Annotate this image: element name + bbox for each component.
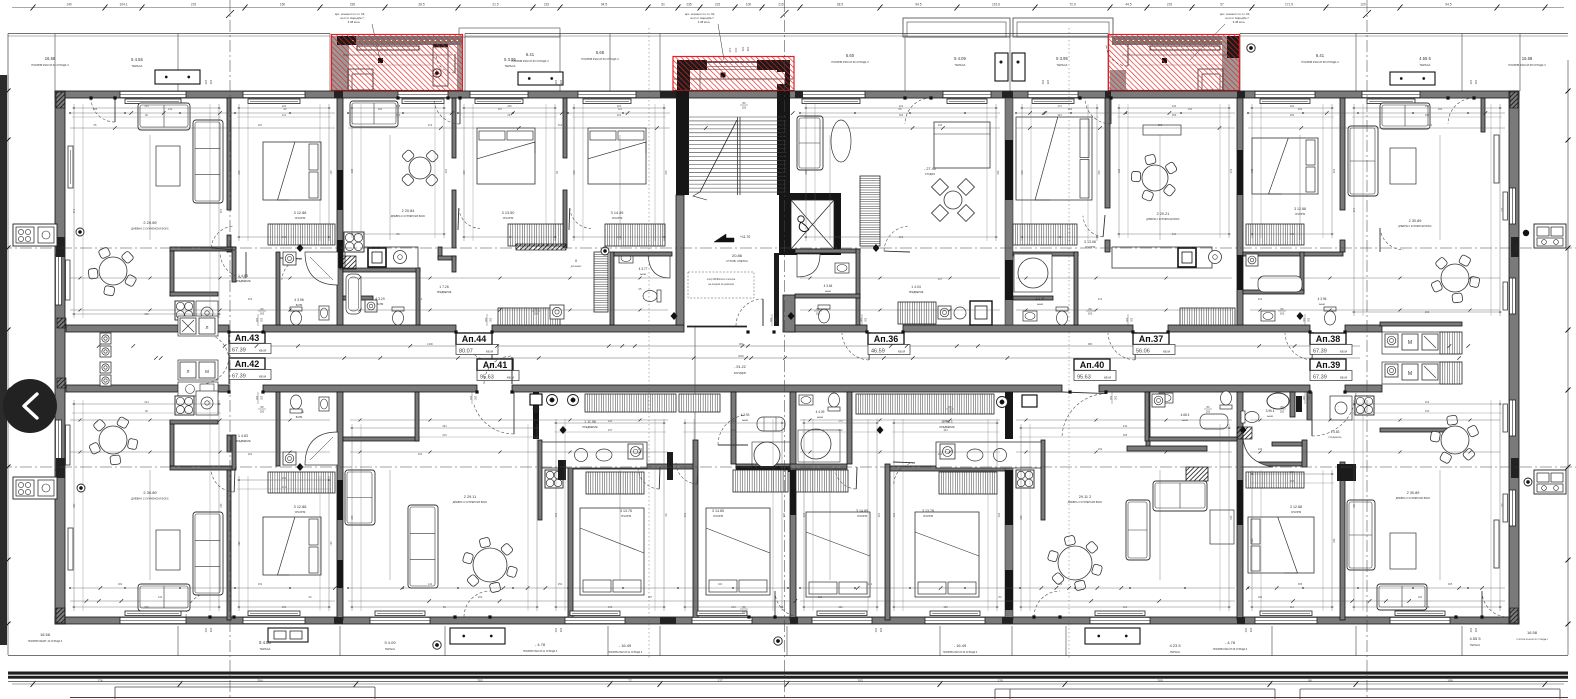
svg-text:160: 160 <box>507 235 512 239</box>
svg-text:189: 189 <box>1447 679 1453 683</box>
svg-text:200: 200 <box>864 318 867 323</box>
svg-text:5 4.09: 5 4.09 <box>384 640 396 645</box>
svg-text:200: 200 <box>282 605 287 609</box>
svg-text:252: 252 <box>558 582 563 586</box>
svg-text:СПАЛНЯ: СПАЛНЯ <box>612 217 623 220</box>
svg-text:252: 252 <box>1097 170 1101 175</box>
svg-text:ТЕРАСА: ТЕРАСА <box>132 64 143 68</box>
svg-text:203: 203 <box>396 113 401 117</box>
svg-text:170: 170 <box>838 419 843 423</box>
svg-text:222: 222 <box>248 452 253 456</box>
svg-text:ПРЕДВЕРИЕ: ПРЕДВЕРИЕ <box>582 426 598 429</box>
svg-text:390: 390 <box>350 515 354 520</box>
svg-text:БАНЯ: БАНЯ <box>1037 303 1043 306</box>
svg-text:ПРЕДВЕРИЕ: ПРЕДВЕРИЕ <box>437 291 452 294</box>
svg-text:200: 200 <box>1307 318 1310 323</box>
svg-text:284: 284 <box>1117 169 1121 174</box>
svg-text:ДНЕВНА С КУХНЕНСКИ БОКС: ДНЕВНА С КУХНЕНСКИ БОКС <box>1396 497 1431 500</box>
svg-text:322: 322 <box>838 605 843 609</box>
svg-text:314: 314 <box>144 104 149 108</box>
svg-text:94.5: 94.5 <box>915 3 921 7</box>
svg-text:67.39: 67.39 <box>232 348 246 354</box>
svg-text:131: 131 <box>1123 605 1128 609</box>
svg-text:152: 152 <box>943 605 948 609</box>
svg-text:230: 230 <box>350 3 356 7</box>
svg-text:100: 100 <box>1188 107 1193 111</box>
svg-text:1 4.83: 1 4.83 <box>1331 430 1340 434</box>
svg-text:3 13.50: 3 13.50 <box>502 211 515 215</box>
svg-text:16.58: 16.58 <box>45 56 56 61</box>
svg-text:410: 410 <box>1229 169 1233 174</box>
svg-text:ДНЕВНА С КУХНЕНСКИ БОКС: ДНЕВНА С КУХНЕНСКИ БОКС <box>1068 501 1103 504</box>
svg-text:127: 127 <box>717 679 723 683</box>
svg-text:215: 215 <box>715 3 721 7</box>
svg-text:2 20.84: 2 20.84 <box>402 209 415 213</box>
svg-text:380: 380 <box>1088 342 1093 346</box>
svg-text:ТЕРАСА: ТЕРАСА <box>1470 643 1480 647</box>
svg-text:400: 400 <box>683 513 687 518</box>
svg-text:200: 200 <box>734 48 738 53</box>
svg-text:ДНЕВНА С КУХНЕНСКИ БОКС: ДНЕВНА С КУХНЕНСКИ БОКС <box>453 501 488 504</box>
svg-text:420: 420 <box>1332 169 1336 174</box>
svg-text:200: 200 <box>378 107 383 111</box>
svg-text:410: 410 <box>1229 515 1233 520</box>
svg-text:205: 205 <box>1157 679 1163 683</box>
svg-text:Ап.39: Ап.39 <box>1316 360 1340 370</box>
svg-text:104: 104 <box>943 428 948 432</box>
svg-text:235: 235 <box>1249 628 1253 633</box>
svg-text:БАНЯ: БАНЯ <box>742 419 748 422</box>
svg-text:100: 100 <box>554 80 558 85</box>
svg-text:104: 104 <box>1057 113 1062 117</box>
svg-text:БАНЯ: БАНЯ <box>817 416 823 419</box>
svg-text:ПОКРИВ КЪМ АТ.41 СГРАДА 3: ПОКРИВ КЪМ АТ.41 СГРАДА 3 <box>523 650 558 653</box>
svg-text:298: 298 <box>1250 538 1254 543</box>
svg-text:100: 100 <box>1302 396 1305 401</box>
svg-text:100: 100 <box>741 47 745 52</box>
svg-text:72.9: 72.9 <box>1069 3 1075 7</box>
svg-text:77: 77 <box>628 679 632 683</box>
svg-text:322: 322 <box>418 452 423 456</box>
svg-text:257: 257 <box>329 541 333 546</box>
svg-text:213: 213 <box>731 605 736 609</box>
svg-text:140: 140 <box>66 3 72 7</box>
svg-text:200: 200 <box>1114 396 1117 401</box>
svg-text:235: 235 <box>559 628 563 633</box>
svg-text:184: 184 <box>1290 470 1295 474</box>
svg-text:100: 100 <box>444 169 448 174</box>
svg-text:Л: Л <box>187 369 190 374</box>
svg-text:322: 322 <box>1158 123 1163 127</box>
svg-text:28.5: 28.5 <box>418 3 424 7</box>
svg-text:ПОКРИВ КЪМ АТ.36 СГРАДА 3: ПОКРИВ КЪМ АТ.36 СГРАДА 3 <box>831 60 869 64</box>
svg-text:3 12.88: 3 12.88 <box>1290 505 1302 509</box>
svg-text:252: 252 <box>997 513 1001 518</box>
svg-text:3 14.49: 3 14.49 <box>611 211 624 215</box>
svg-text:200: 200 <box>260 410 265 414</box>
svg-text:200: 200 <box>534 312 539 316</box>
svg-text:3081: 3081 <box>738 354 744 358</box>
svg-text:305: 305 <box>1448 582 1453 586</box>
svg-text:125: 125 <box>997 679 1003 683</box>
svg-text:3 14.85: 3 14.85 <box>712 509 724 513</box>
svg-text:235: 235 <box>209 628 213 633</box>
svg-text:142: 142 <box>158 595 163 599</box>
svg-text:21.5: 21.5 <box>492 3 498 7</box>
svg-text:СПАЛНЯ: СПАЛНЯ <box>857 515 867 518</box>
svg-text:ПОКРИВ КЪМАТ. 40 СГРАДА 3: ПОКРИВ КЪМАТ. 40 СГРАДА 3 <box>28 640 63 643</box>
svg-text:202: 202 <box>1258 595 1263 599</box>
svg-text:235: 235 <box>686 3 692 7</box>
svg-text:200: 200 <box>282 235 287 239</box>
svg-text:БАНЯ: БАНЯ <box>296 416 303 419</box>
svg-text:257: 257 <box>648 595 653 599</box>
svg-text:БАНЯ: БАНЯ <box>1182 419 1188 422</box>
svg-text:ТЕРАСА: ТЕРАСА <box>260 647 271 651</box>
svg-text:КОРИДОР: КОРИДОР <box>734 371 747 375</box>
svg-text:131: 131 <box>868 582 873 586</box>
svg-text:ДНЕВНА С КУХНЕНСКИ БОКС: ДНЕВНА С КУХНЕНСКИ БОКС <box>1146 218 1179 221</box>
svg-text:203: 203 <box>1298 107 1303 111</box>
svg-text:М: М <box>1408 340 1412 346</box>
svg-text:- 4.78: - 4.78 <box>1225 640 1236 645</box>
svg-text:1 4.04: 1 4.04 <box>911 285 921 289</box>
svg-text:100: 100 <box>746 3 752 7</box>
svg-text:100: 100 <box>1125 318 1128 323</box>
svg-text:16.58: 16.58 <box>1522 56 1533 61</box>
svg-text:М: М <box>1408 371 1412 377</box>
svg-text:235: 235 <box>746 47 750 52</box>
svg-text:302: 302 <box>938 452 943 456</box>
svg-text:5 3.95: 5 3.95 <box>504 57 516 62</box>
svg-text:202: 202 <box>1068 107 1073 111</box>
svg-text:305: 305 <box>144 312 149 316</box>
svg-text:400: 400 <box>802 513 806 518</box>
svg-text:215: 215 <box>1167 3 1173 7</box>
svg-text:3 12.88: 3 12.88 <box>294 505 307 509</box>
svg-text:213: 213 <box>428 123 433 127</box>
svg-text:2 30.89: 2 30.89 <box>1407 491 1420 495</box>
svg-text:340: 340 <box>638 447 643 451</box>
svg-text:200: 200 <box>474 396 477 401</box>
svg-text:200: 200 <box>1280 410 1285 414</box>
svg-text:ТЕРАСА: ТЕРАСА <box>505 64 516 68</box>
svg-text:СПАЛНЯ: СПАЛНЯ <box>1291 511 1301 514</box>
svg-text:322: 322 <box>899 235 904 239</box>
svg-text:Ап.42: Ап.42 <box>235 359 259 369</box>
svg-text:235: 235 <box>1474 80 1478 85</box>
svg-text:312: 312 <box>558 123 563 127</box>
svg-text:213: 213 <box>1098 297 1103 301</box>
svg-text:20.86: 20.86 <box>732 253 743 258</box>
svg-text:235: 235 <box>559 80 563 85</box>
svg-text:284: 284 <box>1250 169 1254 174</box>
svg-text:4 3.64: 4 3.64 <box>824 284 833 288</box>
svg-text:3.38 кв.м.: 3.38 кв.м. <box>698 20 711 24</box>
svg-text:3 13.76: 3 13.76 <box>620 509 632 513</box>
svg-text:на покрив за ревизия: на покрив за ревизия <box>708 283 734 286</box>
svg-text:100: 100 <box>469 396 472 401</box>
svg-text:302: 302 <box>899 113 904 117</box>
svg-text:215: 215 <box>778 3 784 7</box>
svg-text:237: 237 <box>507 113 512 117</box>
svg-text:94.5: 94.5 <box>601 3 607 7</box>
svg-text:440: 440 <box>1352 208 1356 213</box>
svg-text:116: 116 <box>1290 605 1295 609</box>
svg-text:ДРЕШНИК: ДРЕШНИК <box>571 266 583 268</box>
svg-text:240: 240 <box>608 419 613 423</box>
svg-text:2 20.21: 2 20.21 <box>1157 212 1170 216</box>
svg-text:102: 102 <box>1425 605 1430 609</box>
svg-text:опор 90/90см в плочата: опор 90/90см в плочата <box>707 277 736 281</box>
svg-text:ПОКРИВ КЪМ АТ.41 СГРАДА 3: ПОКРИВ КЪМ АТ.41 СГРАДА 3 <box>608 651 643 654</box>
svg-text:100: 100 <box>1244 628 1248 633</box>
svg-text:5.60: 5.60 <box>846 53 855 58</box>
svg-text:438: 438 <box>72 503 76 508</box>
svg-text:100: 100 <box>874 628 878 633</box>
svg-text:290: 290 <box>572 170 576 175</box>
svg-text:Ап.38: Ап.38 <box>1316 334 1340 344</box>
svg-text:100: 100 <box>204 80 208 85</box>
svg-text:120: 120 <box>1360 3 1366 7</box>
svg-text:Л: Л <box>206 325 209 330</box>
svg-text:150: 150 <box>1425 409 1430 413</box>
svg-text:4 4.09: 4 4.09 <box>816 410 825 414</box>
svg-text:438: 438 <box>1352 503 1356 508</box>
svg-text:420: 420 <box>1332 538 1336 543</box>
svg-text:100: 100 <box>204 628 208 633</box>
svg-text:1390: 1390 <box>427 342 433 346</box>
svg-text:171.5: 171.5 <box>1285 3 1293 7</box>
svg-text:316: 316 <box>1425 400 1430 404</box>
svg-text:200: 200 <box>478 595 483 599</box>
svg-text:ДНЕВНА С КУХНЕНСКИ БОКС: ДНЕВНА С КУХНЕНСКИ БОКС <box>391 215 426 218</box>
svg-text:80.07: 80.07 <box>459 349 473 355</box>
svg-text:ТЕРАСА: ТЕРАСА <box>1420 63 1431 67</box>
svg-text:4 3.93: 4 3.93 <box>741 413 750 417</box>
svg-text:174: 174 <box>1057 104 1062 108</box>
svg-text:235: 235 <box>879 628 883 633</box>
svg-text:312: 312 <box>1258 297 1263 301</box>
svg-text:140: 140 <box>728 48 732 53</box>
svg-text:5 4.09: 5 4.09 <box>954 56 966 61</box>
svg-text:3 12.88: 3 12.88 <box>294 211 307 215</box>
svg-text:Ап.40: Ап.40 <box>1080 360 1104 370</box>
svg-text:100: 100 <box>255 396 258 401</box>
svg-text:215: 215 <box>544 3 550 7</box>
svg-text:235: 235 <box>209 80 213 85</box>
svg-text:4 3.96: 4 3.96 <box>1318 297 1327 301</box>
svg-text:29.11 2: 29.11 2 <box>1079 495 1091 499</box>
svg-text:100: 100 <box>1041 80 1045 85</box>
svg-text:200: 200 <box>489 318 492 323</box>
svg-text:121: 121 <box>618 107 623 111</box>
svg-text:290: 290 <box>462 170 466 175</box>
svg-text:БАНЯ: БАНЯ <box>1319 303 1325 306</box>
svg-text:286: 286 <box>237 541 241 546</box>
svg-text:СПАЛНЯ: СПАЛНЯ <box>1085 246 1095 249</box>
svg-text:57: 57 <box>1220 3 1224 7</box>
svg-text:176: 176 <box>97 679 103 683</box>
svg-text:СПАЛНЯ: СПАЛНЯ <box>923 515 933 518</box>
svg-text:ПРЕДВЕРИЕ: ПРЕДВЕРИЕ <box>235 440 251 443</box>
svg-text:6.38 кв.м.: 6.38 кв.м. <box>1233 20 1246 24</box>
svg-text:150: 150 <box>1425 113 1430 117</box>
svg-text:410: 410 <box>1058 582 1063 586</box>
svg-text:- 16.49: - 16.49 <box>619 643 632 648</box>
svg-text:222: 222 <box>731 428 736 432</box>
svg-text:142: 142 <box>219 503 223 508</box>
svg-text:ПОКРИВ КЪМ АТ.40 СГРАДА 3: ПОКРИВ КЪМ АТ.40 СГРАДА 3 <box>511 59 549 63</box>
svg-text:М: М <box>205 369 209 374</box>
svg-text:121: 121 <box>818 595 823 599</box>
svg-text:365: 365 <box>1172 113 1177 117</box>
svg-text:46.59: 46.59 <box>871 349 885 355</box>
svg-text:СТУДИО: СТУДИО <box>925 173 935 176</box>
svg-text:ТЕРАСА: ТЕРАСА <box>1170 650 1180 654</box>
svg-text:152: 152 <box>258 582 263 586</box>
svg-text:160: 160 <box>1438 107 1443 111</box>
svg-text:200: 200 <box>1130 318 1133 323</box>
svg-text:121: 121 <box>282 485 287 489</box>
svg-text:ПРЕДВЕРИЕ: ПРЕДВЕРИЕ <box>909 291 924 294</box>
svg-text:142: 142 <box>168 107 173 111</box>
svg-text:100: 100 <box>484 318 487 323</box>
svg-text:217: 217 <box>1500 503 1504 508</box>
svg-text:ТЕРАСА: ТЕРАСА <box>955 63 966 67</box>
svg-text:237: 237 <box>258 123 263 127</box>
svg-text:6.41: 6.41 <box>526 52 535 57</box>
svg-text:4.55 5: 4.55 5 <box>1419 56 1431 61</box>
svg-text:кв.м: кв.м <box>1104 376 1111 380</box>
svg-text:142: 142 <box>428 582 433 586</box>
svg-text:2 20.89: 2 20.89 <box>143 220 157 225</box>
svg-text:290: 290 <box>1020 170 1024 175</box>
svg-text:206: 206 <box>507 104 512 108</box>
svg-text:86: 86 <box>1308 679 1312 683</box>
svg-text:СПАЛНЯ: СПАЛНЯ <box>503 217 514 220</box>
svg-text:4 3.77: 4 3.77 <box>639 267 648 271</box>
svg-text:5 4.55: 5 4.55 <box>131 57 143 62</box>
svg-text:102: 102 <box>1425 310 1430 314</box>
svg-text:4 3.96: 4 3.96 <box>294 298 304 302</box>
svg-text:СПАЛНЯ: СПАЛНЯ <box>295 511 306 514</box>
svg-text:312: 312 <box>664 170 668 175</box>
svg-text:5.68: 5.68 <box>596 50 605 55</box>
svg-text:100: 100 <box>554 628 558 633</box>
svg-text:4 4.05: 4 4.05 <box>1036 297 1045 301</box>
svg-text:230: 230 <box>943 419 948 423</box>
svg-text:142: 142 <box>1258 447 1263 451</box>
svg-text:365: 365 <box>1298 582 1303 586</box>
svg-text:ПОКРИВ КЪМ АТ.38 СГРАДА 3: ПОКРИВ КЪМ АТ.38 СГРАДА 3 <box>1301 60 1339 64</box>
svg-text:444: 444 <box>72 209 76 214</box>
svg-text:316: 316 <box>1425 104 1430 108</box>
svg-text:100: 100 <box>769 318 772 323</box>
svg-text:340: 340 <box>877 513 881 518</box>
svg-text:2 29.11: 2 29.11 <box>464 495 476 499</box>
svg-text:100: 100 <box>537 515 541 520</box>
svg-text:142: 142 <box>219 209 223 214</box>
svg-text:203: 203 <box>248 297 253 301</box>
svg-text:305: 305 <box>93 107 98 111</box>
svg-text:СТЪЛБ. КЛЕТКА: СТЪЛБ. КЛЕТКА <box>726 259 748 263</box>
svg-text:237: 237 <box>608 428 613 432</box>
svg-text:100: 100 <box>1302 318 1305 323</box>
svg-text:БАНЯ: БАНЯ <box>296 304 303 307</box>
svg-text:3 13.78: 3 13.78 <box>922 509 934 513</box>
svg-text:ПОКРИВ КЪМ АТ.40 СГРАДА 3: ПОКРИВ КЪМ АТ.40 СГРАДА 3 <box>581 57 619 61</box>
svg-text:215: 215 <box>191 3 197 7</box>
svg-text:100: 100 <box>1109 396 1112 401</box>
svg-text:200: 200 <box>1307 396 1310 401</box>
svg-text:200: 200 <box>948 410 953 414</box>
svg-text:284: 284 <box>350 169 354 174</box>
svg-text:Ап.43: Ап.43 <box>235 333 259 343</box>
svg-text:400: 400 <box>892 513 896 518</box>
svg-text:28.5: 28.5 <box>837 3 843 7</box>
svg-text:235: 235 <box>1046 80 1050 85</box>
svg-text:кв.м: кв.м <box>507 376 514 380</box>
svg-text:4.55 5: 4.55 5 <box>1469 636 1481 641</box>
svg-text:кв.м: кв.м <box>259 375 266 379</box>
svg-text:305: 305 <box>144 605 149 609</box>
svg-text:152: 152 <box>1098 447 1103 451</box>
svg-text:ПОКРИВ КЪМ АТ.40 СГРАДА 3: ПОКРИВ КЪМ АТ.40 СГРАДА 3 <box>31 63 69 67</box>
svg-text:365: 365 <box>1123 433 1128 437</box>
svg-text:Ап.44: Ап.44 <box>462 334 486 344</box>
svg-text:16.58: 16.58 <box>1527 630 1538 635</box>
svg-text:160: 160 <box>608 605 613 609</box>
svg-text:200: 200 <box>1280 312 1285 316</box>
svg-text:104: 104 <box>718 582 723 586</box>
svg-text:ПРЕДВЕРИЕ: ПРЕДВЕРИЕ <box>1328 437 1342 439</box>
svg-text:340: 340 <box>996 170 1000 175</box>
svg-text:394: 394 <box>442 424 447 428</box>
svg-text:3.96 4: 3.96 4 <box>1266 409 1275 413</box>
svg-text:БАНЯ: БАНЯ <box>640 273 646 276</box>
svg-text:152: 152 <box>1057 235 1062 239</box>
svg-text:67.39: 67.39 <box>232 374 246 380</box>
svg-text:2 30.89: 2 30.89 <box>143 490 157 495</box>
svg-text:200: 200 <box>534 410 539 414</box>
svg-text:6.38 кв.м.: 6.38 кв.м. <box>348 20 361 24</box>
svg-text:312: 312 <box>782 513 786 518</box>
svg-text:302: 302 <box>838 428 843 432</box>
svg-text:5x: 5x <box>661 3 665 7</box>
svg-text:400: 400 <box>554 513 558 518</box>
svg-text:100: 100 <box>1469 80 1473 85</box>
svg-text:440: 440 <box>1123 424 1128 428</box>
svg-text:ТЕРАСА: ТЕРАСА <box>385 647 395 651</box>
svg-text:203: 203 <box>442 433 447 437</box>
svg-text:235: 235 <box>1474 628 1478 633</box>
svg-text:4.23 5: 4.23 5 <box>1169 643 1181 648</box>
svg-text:95.63: 95.63 <box>480 375 494 381</box>
svg-text:кв.м: кв.м <box>259 349 266 353</box>
svg-text:кв.м: кв.м <box>1163 350 1170 354</box>
svg-text:100: 100 <box>1469 628 1473 633</box>
svg-text:213: 213 <box>617 235 622 239</box>
svg-text:200: 200 <box>260 318 263 323</box>
svg-text:257: 257 <box>498 107 503 111</box>
svg-text:237: 237 <box>938 277 943 281</box>
svg-text:294: 294 <box>1290 113 1295 117</box>
svg-text:121: 121 <box>282 113 287 117</box>
svg-text:БАНЯ: БАНЯ <box>1267 415 1273 418</box>
svg-text:94.5: 94.5 <box>1445 3 1451 7</box>
svg-text:200: 200 <box>816 312 821 316</box>
